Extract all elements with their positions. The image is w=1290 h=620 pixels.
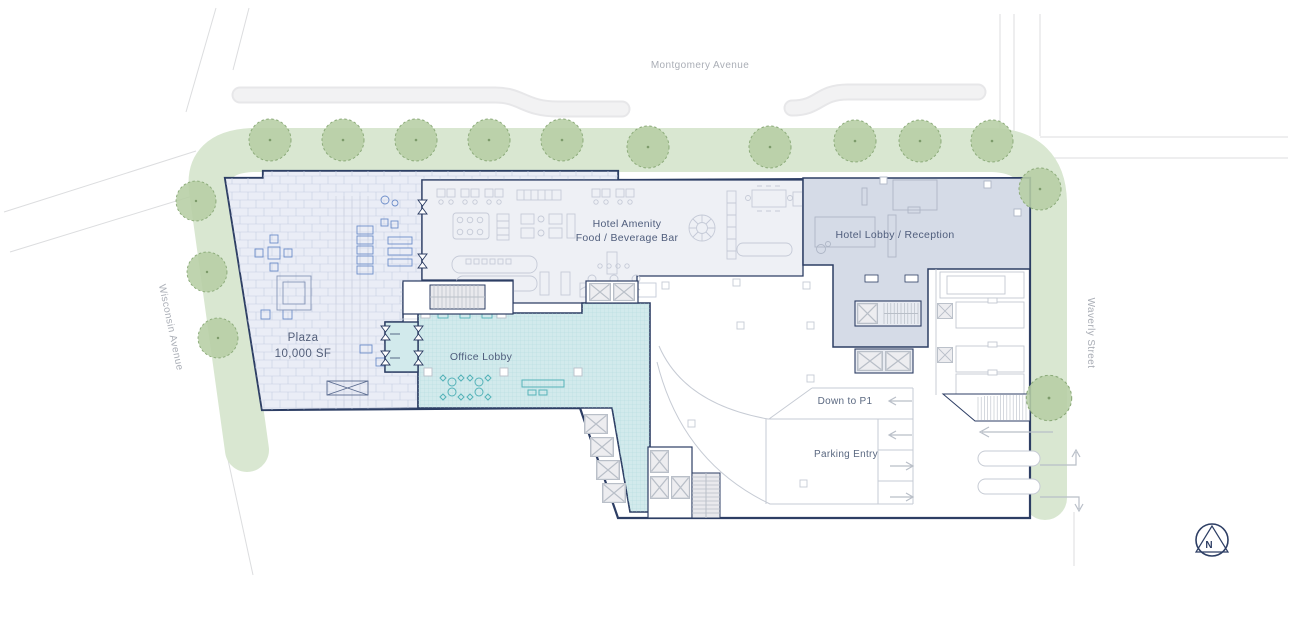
tree-icon — [1019, 168, 1061, 210]
tree-icon — [899, 120, 941, 162]
central-stair-core — [403, 281, 513, 314]
north-compass-icon: N — [1196, 524, 1228, 556]
wisconsin-curb-line — [186, 8, 216, 112]
street-label-waverly: Waverly Street — [1085, 298, 1096, 369]
elevator-icon — [614, 284, 635, 301]
tree-icon — [541, 119, 583, 161]
elevator-icon — [603, 484, 626, 503]
elevator-icon — [858, 352, 882, 371]
tree-icon — [468, 119, 510, 161]
street-label-montgomery: Montgomery Avenue — [651, 60, 749, 71]
tree-icon — [749, 126, 791, 168]
site-plan-drawing: Montgomery Avenue Wisconsin Avenue Waver… — [0, 0, 1290, 620]
down-to-p1-label: Down to P1 — [818, 396, 873, 407]
office-lobby-label: Office Lobby — [450, 351, 513, 363]
central-elevator-bank — [586, 281, 638, 303]
elevator-icon — [858, 304, 878, 324]
hotel-amenity-label-line2: Food / Beverage Bar — [576, 232, 679, 244]
tree-icon — [834, 120, 876, 162]
wisconsin-south-curb-line — [227, 455, 253, 575]
elevator-icon — [585, 415, 608, 434]
hotel-lobby-label: Hotel Lobby / Reception — [836, 229, 955, 241]
elevator-icon — [651, 451, 669, 473]
sidewalk-paths — [240, 92, 978, 109]
elevator-icon — [651, 477, 669, 499]
hotel-amenity-label-line1: Hotel Amenity — [593, 218, 662, 230]
plaza-name-label: Plaza — [288, 332, 319, 344]
elevator-icon — [886, 352, 910, 371]
elevator-icon — [597, 461, 620, 480]
tree-icon — [249, 119, 291, 161]
tree-icon — [1026, 375, 1071, 420]
tree-icon — [395, 119, 437, 161]
north-letter: N — [1205, 540, 1212, 551]
parking-entry-label: Parking Entry — [814, 449, 878, 460]
elevator-icon — [590, 284, 611, 301]
tree-icon — [187, 252, 227, 292]
plaza-size-label: 10,000 SF — [275, 348, 332, 360]
elevator-icon — [937, 303, 952, 318]
site-plan: Montgomery Avenue Wisconsin Avenue Waver… — [0, 0, 1290, 620]
tree-icon — [627, 126, 669, 168]
montgomery-west-curb-line — [4, 151, 196, 212]
tree-icon — [198, 318, 238, 358]
tree-icon — [322, 119, 364, 161]
wisconsin-curb-line — [233, 8, 249, 70]
elevator-icon — [591, 438, 614, 457]
tree-icon — [971, 120, 1013, 162]
tree-icon — [176, 181, 216, 221]
elevator-icon — [672, 477, 690, 499]
elevator-icon — [937, 347, 952, 362]
street-label-wisconsin: Wisconsin Avenue — [156, 283, 185, 371]
